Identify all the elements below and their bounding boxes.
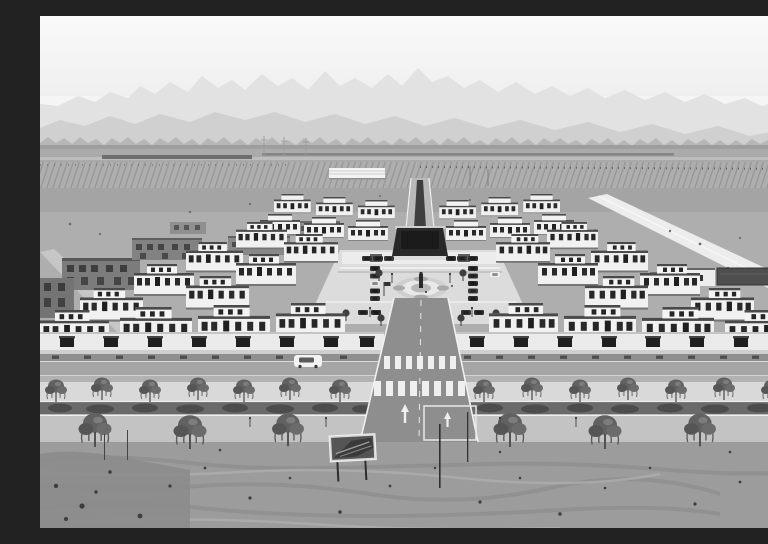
farm-wall bbox=[262, 153, 674, 156]
distant-treeline bbox=[40, 145, 768, 149]
aerial-photo: black-and-white aerial photograph bbox=[40, 16, 768, 528]
white-suv bbox=[294, 355, 322, 368]
entrance-axis-road bbox=[406, 178, 434, 228]
photo-canvas bbox=[40, 16, 768, 528]
distant-white-building bbox=[329, 168, 385, 179]
statue bbox=[419, 274, 423, 288]
dirt-foreground bbox=[40, 442, 768, 528]
farm-wall bbox=[102, 155, 252, 159]
crop-rows bbox=[40, 162, 768, 188]
